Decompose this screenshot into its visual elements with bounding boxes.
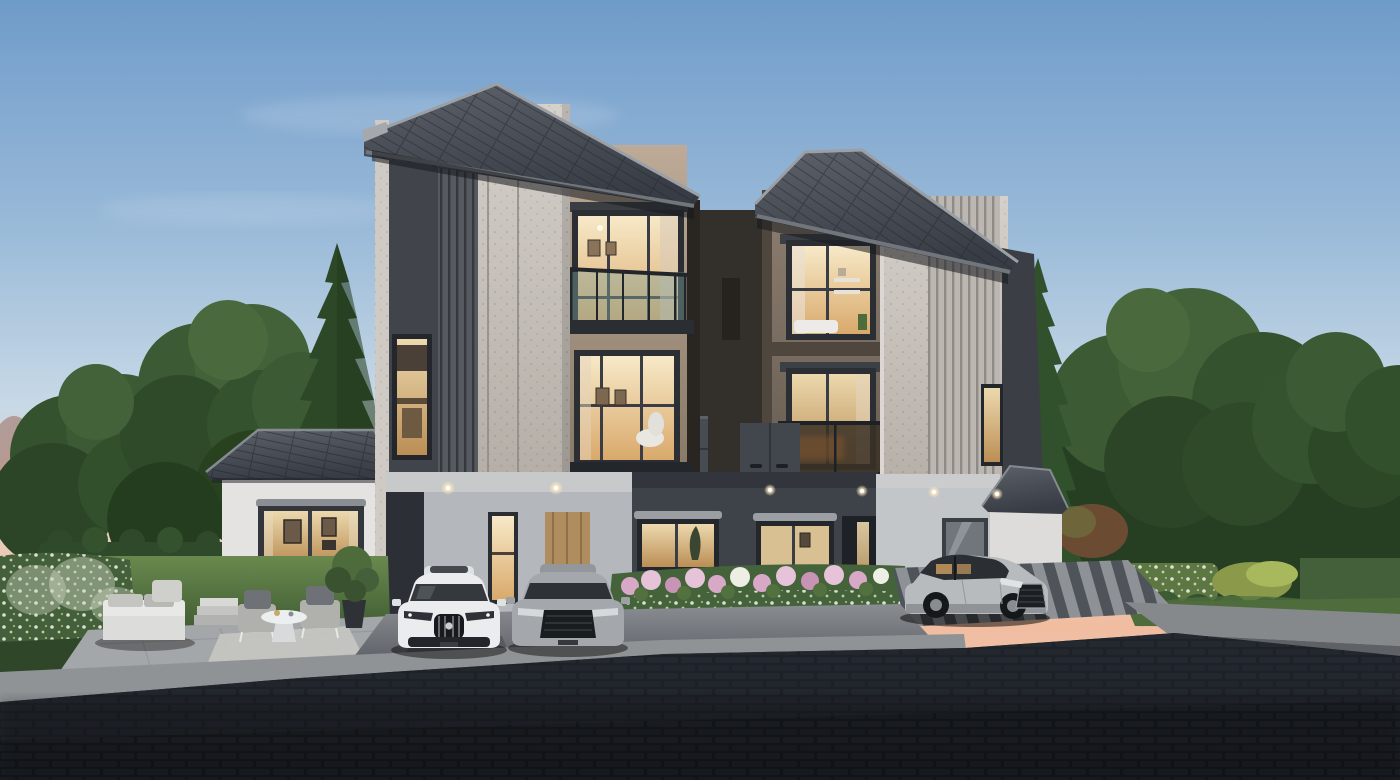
shelf-box xyxy=(838,268,846,276)
panel-handle xyxy=(776,464,788,468)
rear-wheel-rim xyxy=(930,599,942,611)
ground-window-2 xyxy=(753,513,837,569)
road-vignette xyxy=(0,700,1400,780)
framed-picture xyxy=(800,533,810,547)
lit-cabin-window xyxy=(957,564,971,574)
table-item xyxy=(289,612,294,617)
side-mirror xyxy=(497,599,506,606)
window-transom xyxy=(580,404,674,407)
floor-band xyxy=(762,342,886,356)
center-soffit xyxy=(632,472,878,490)
framed-picture xyxy=(615,390,626,405)
range-hood xyxy=(397,345,427,371)
side-window xyxy=(722,278,740,340)
porch-steps xyxy=(194,598,244,625)
framed-picture xyxy=(596,388,609,405)
roller-shade-bar xyxy=(256,499,366,507)
shelf xyxy=(834,278,860,282)
balcony-slab xyxy=(562,320,694,334)
rendering-canvas xyxy=(0,0,1400,780)
balcony-glass xyxy=(570,272,686,320)
counter xyxy=(397,398,427,404)
side-mirror xyxy=(392,599,401,606)
shelf xyxy=(834,290,860,294)
panel-handle xyxy=(750,464,762,468)
bed xyxy=(794,320,838,333)
curtain xyxy=(580,356,591,460)
framed-picture xyxy=(588,240,600,256)
framed-picture xyxy=(606,242,616,255)
cloud xyxy=(100,194,400,226)
curtain xyxy=(264,511,273,563)
framed-picture xyxy=(322,518,336,536)
window-glass xyxy=(580,356,674,460)
left-house-2f-window xyxy=(566,350,692,475)
sunroof xyxy=(430,566,468,573)
townhouse-dusk-rendering xyxy=(0,0,1400,780)
hedge-wall-right xyxy=(1300,558,1400,602)
window-glass xyxy=(984,388,1000,462)
door-glass xyxy=(492,516,514,600)
window-mullion xyxy=(308,511,312,563)
window-mullion xyxy=(675,524,678,567)
white-chair-back xyxy=(648,412,664,436)
side-return xyxy=(686,200,700,500)
framed-picture xyxy=(284,520,301,543)
side-mirror xyxy=(621,597,630,604)
window-mullion xyxy=(792,526,795,565)
cabinet xyxy=(402,408,422,438)
left-house-balcony xyxy=(562,269,694,334)
tall-kitchen-window xyxy=(392,334,432,460)
ceiling-light xyxy=(597,225,603,231)
roller-shade-bar xyxy=(753,513,837,521)
reflective-window xyxy=(942,518,988,560)
framed-picture xyxy=(322,540,336,550)
plant xyxy=(858,314,867,330)
seat-cushion xyxy=(108,594,143,607)
lit-cabin-window xyxy=(936,564,952,574)
entry-door-glazed xyxy=(488,512,518,604)
table-item xyxy=(274,610,280,616)
back-cushion xyxy=(152,580,182,602)
carport-soffit-beam xyxy=(386,472,636,492)
golden-grass-light xyxy=(1246,561,1298,587)
license-plate xyxy=(440,642,458,647)
window-mullion xyxy=(600,356,603,460)
badge xyxy=(445,622,452,629)
grille xyxy=(540,610,596,638)
side-mirror xyxy=(506,597,515,604)
wing-eave-shadow xyxy=(212,478,396,483)
license-plate xyxy=(558,640,578,645)
side-lit-window xyxy=(981,384,1003,466)
ground-window-1 xyxy=(634,511,722,571)
windshield xyxy=(524,583,612,599)
roller-shade-bar xyxy=(634,511,722,519)
